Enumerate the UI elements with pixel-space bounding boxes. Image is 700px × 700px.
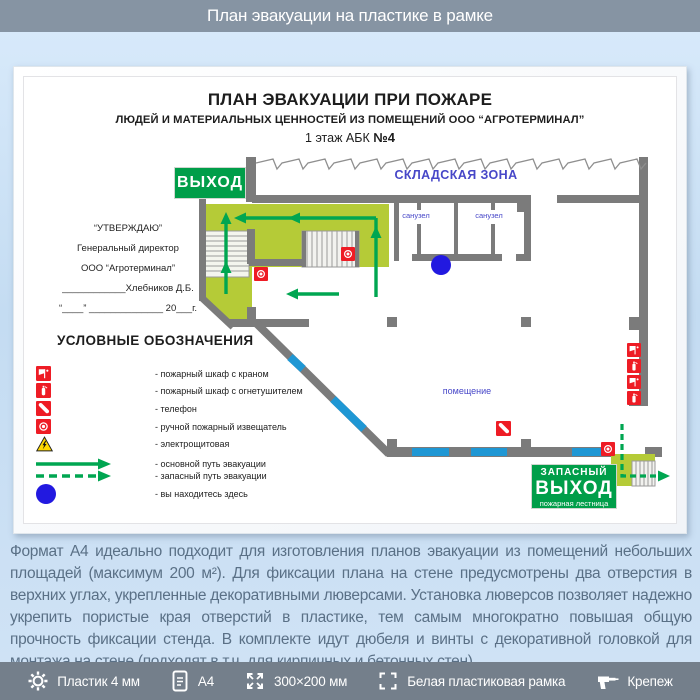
feature-material: Пластик 4 мм <box>27 670 140 692</box>
room-label: помещение <box>443 386 491 396</box>
reserve-route-arrow-icon <box>36 470 112 482</box>
approval-block: “УТВЕРЖДАЮ” Генеральный директор ООО “Аг… <box>32 223 224 323</box>
document-icon <box>170 670 190 692</box>
phone-icon <box>36 401 51 416</box>
storage-zone-label: СКЛАДСКАЯ ЗОНА <box>394 168 517 182</box>
fire-cabinet-crane-icon <box>627 343 641 357</box>
feature-dimensions: 300×200 мм <box>244 670 347 692</box>
frame-icon <box>377 670 399 692</box>
main-route-arrow-icon <box>36 458 112 470</box>
you-are-here-marker <box>431 255 451 275</box>
window-strips <box>290 357 611 456</box>
bathroom-label: санузел <box>402 211 429 220</box>
phone-icon <box>496 421 511 436</box>
gear-icon <box>27 670 49 692</box>
feature-format: А4 <box>170 670 214 692</box>
plan-safety-icons <box>254 247 641 456</box>
feature-mounting: Крепеж <box>595 670 672 692</box>
feature-frame: Белая пластиковая рамка <box>377 670 565 692</box>
bathroom-label: санузел <box>475 211 502 220</box>
manual-call-point-icon <box>601 442 615 456</box>
manual-call-point-icon <box>254 267 268 281</box>
emergency-exit-vestibule <box>611 454 655 486</box>
page-title: План эвакуации на пластике в рамке <box>207 6 493 26</box>
dimensions-icon <box>244 670 266 692</box>
product-description: Формат А4 идеально подходит для изготовл… <box>10 541 692 673</box>
legend: - пожарный шкаф с краном - пожарный шкаф… <box>36 360 286 520</box>
legend-title: УСЛОВНЫЕ ОБОЗНАЧЕНИЯ <box>57 333 254 348</box>
header-bar: План эвакуации на пластике в рамке <box>0 0 700 32</box>
fire-cabinet-crane-icon <box>627 375 641 389</box>
fire-cabinet-extinguisher-icon <box>627 391 641 405</box>
page: { "header": { "title": "План эвакуации н… <box>0 0 700 700</box>
fire-cabinet-extinguisher-icon <box>36 383 51 398</box>
fire-cabinet-extinguisher-icon <box>627 359 641 373</box>
manual-call-point-icon <box>36 419 51 434</box>
exit-sign: ВЫХОД <box>174 167 246 199</box>
manual-call-point-icon <box>341 247 355 261</box>
electrical-room-icon <box>36 436 53 452</box>
drill-icon <box>595 670 619 692</box>
plastic-frame: ПЛАН ЭВАКУАЦИИ ПРИ ПОЖАРЕ ЛЮДЕЙ И МАТЕРИ… <box>13 66 687 534</box>
fire-cabinet-crane-icon <box>36 366 51 381</box>
evacuation-plan-sheet: ПЛАН ЭВАКУАЦИИ ПРИ ПОЖАРЕ ЛЮДЕЙ И МАТЕРИ… <box>23 76 677 524</box>
reserve-exit-sign: ЗАПАСНЫЙ ВЫХОД пожарная лестница <box>531 464 617 509</box>
you-are-here-icon <box>36 484 56 504</box>
feature-bar: Пластик 4 мм А4 300×200 мм Белая пластик… <box>0 662 700 700</box>
